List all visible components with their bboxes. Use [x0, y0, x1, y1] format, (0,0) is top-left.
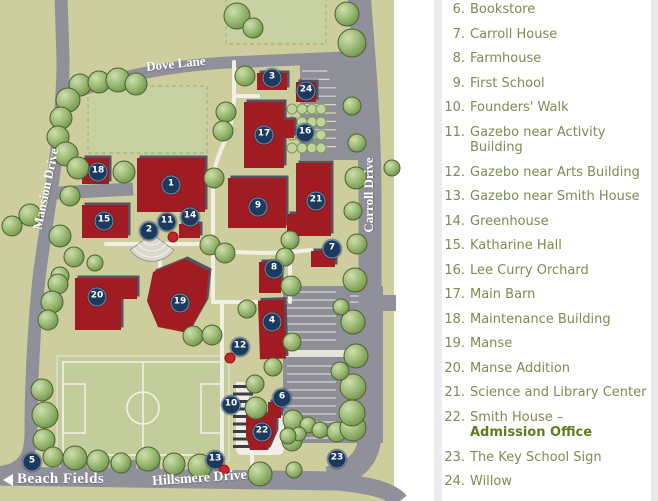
map-marker-3[interactable]: 3 — [263, 69, 282, 88]
map-marker-9[interactable]: 9 — [249, 198, 268, 217]
map-marker-17[interactable]: 17 — [255, 126, 274, 145]
legend-item: 14.Greenhouse — [442, 214, 651, 230]
legend-item: 17.Main Barn — [442, 287, 651, 303]
legend-item: 21.Science and Library Center — [442, 385, 651, 401]
legend-item: 13.Gazebo near Smith House — [442, 189, 651, 205]
divider-left — [434, 0, 442, 501]
divider-right — [651, 0, 658, 501]
map-marker-22[interactable]: 22 — [253, 423, 272, 442]
map-marker-18[interactable]: 18 — [89, 163, 108, 182]
map-marker-24[interactable]: 24 — [297, 82, 316, 101]
legend-item: 22.Smith House –Admission Office — [442, 410, 651, 441]
road-label-carroll-drive: Carroll Drive — [361, 135, 377, 255]
road-label-beach-fields: Beach Fields — [17, 471, 104, 488]
gazebo-dot — [168, 232, 179, 243]
legend-item: 16.Lee Curry Orchard — [442, 263, 651, 279]
map-marker-10[interactable]: 10 — [222, 396, 241, 415]
map-marker-21[interactable]: 21 — [307, 192, 326, 211]
legend-item: 7.Carroll House — [442, 27, 651, 43]
legend-item: 11.Gazebo near Activity Building — [442, 125, 651, 156]
legend-item: 10.Founders' Walk — [442, 100, 651, 116]
map-marker-8[interactable]: 8 — [265, 260, 284, 279]
map-marker-15[interactable]: 15 — [95, 212, 114, 231]
map-marker-1[interactable]: 1 — [162, 176, 181, 195]
legend-item: 20.Manse Addition — [442, 361, 651, 377]
legend-item: 9.First School — [442, 76, 651, 92]
map-marker-11[interactable]: 11 — [158, 213, 177, 232]
map-marker-14[interactable]: 14 — [181, 208, 200, 227]
map-marker-7[interactable]: 7 — [323, 240, 342, 259]
campus-map: 123456789101112131415161718192021222324 … — [0, 0, 420, 501]
legend-item: 24.Willow — [442, 474, 651, 490]
map-marker-5[interactable]: 5 — [23, 453, 42, 472]
map-marker-4[interactable]: 4 — [263, 313, 282, 332]
map-marker-2[interactable]: 2 — [140, 222, 159, 241]
legend-item: 18.Maintenance Building — [442, 312, 651, 328]
legend-item: 19.Manse — [442, 336, 651, 352]
legend-item: 12.Gazebo near Arts Building — [442, 165, 651, 181]
legend-panel: 6.Bookstore7.Carroll House8.Farmhouse9.F… — [442, 2, 651, 499]
legend-item: 8.Farmhouse — [442, 51, 651, 67]
gazebo-dot — [225, 353, 236, 364]
legend-item: 6.Bookstore — [442, 2, 651, 18]
map-marker-23[interactable]: 23 — [328, 450, 347, 469]
map-marker-20[interactable]: 20 — [88, 288, 107, 307]
legend-item: 15.Katharine Hall — [442, 238, 651, 254]
legend-list: 6.Bookstore7.Carroll House8.Farmhouse9.F… — [442, 2, 651, 490]
beach-fields-arrow-icon — [3, 474, 13, 486]
map-marker-19[interactable]: 19 — [171, 294, 190, 313]
map-marker-16[interactable]: 16 — [296, 124, 315, 143]
map-marker-6[interactable]: 6 — [273, 389, 292, 408]
legend-item: 23.The Key School Sign — [442, 450, 651, 466]
marker-layer: 123456789101112131415161718192021222324 — [0, 0, 420, 501]
